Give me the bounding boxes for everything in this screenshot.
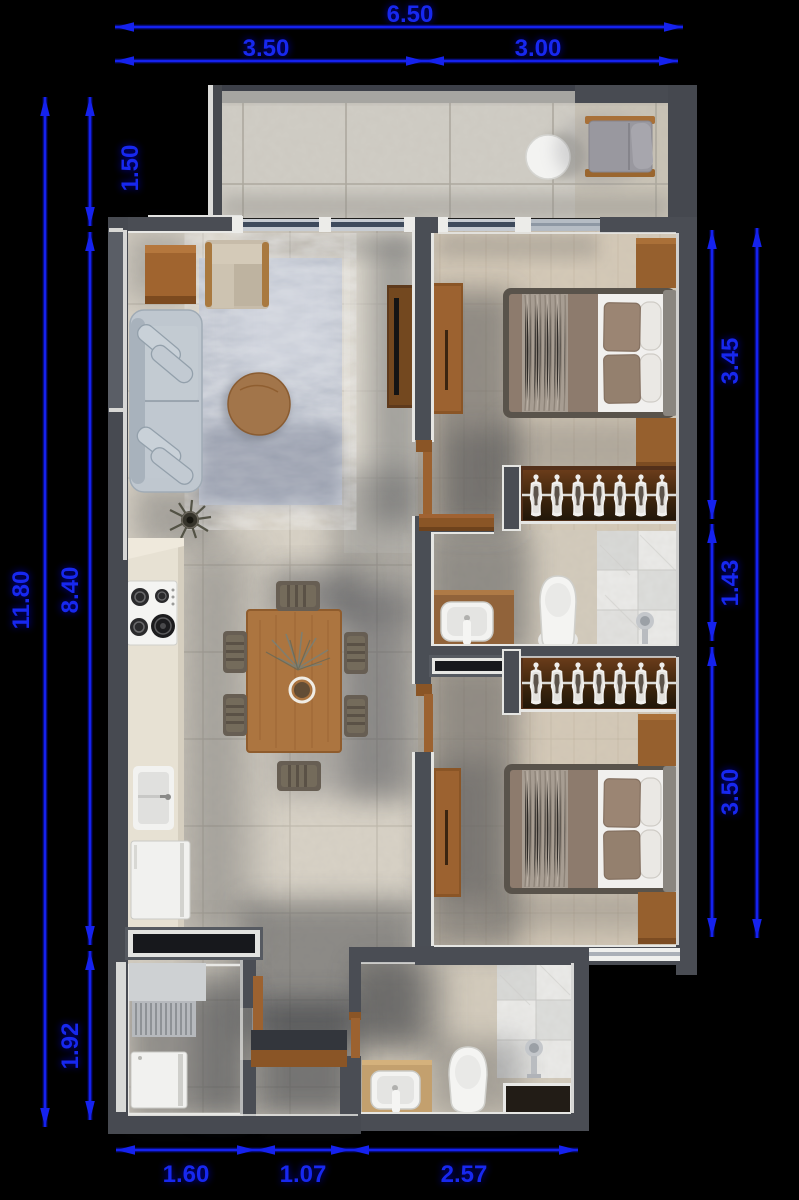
svg-text:1.50: 1.50 <box>117 145 144 192</box>
svg-text:3.50: 3.50 <box>717 769 744 816</box>
svg-text:1.43: 1.43 <box>717 560 744 607</box>
svg-text:2.57: 2.57 <box>441 1161 488 1188</box>
svg-text:6.50: 6.50 <box>387 1 434 28</box>
svg-text:1.92: 1.92 <box>57 1023 84 1070</box>
svg-text:8.40: 8.40 <box>57 567 84 614</box>
svg-text:3.50: 3.50 <box>243 35 290 62</box>
svg-text:1.07: 1.07 <box>280 1161 327 1188</box>
svg-text:3.45: 3.45 <box>717 338 744 385</box>
svg-text:1.60: 1.60 <box>163 1161 210 1188</box>
svg-text:3.00: 3.00 <box>515 35 562 62</box>
svg-text:11.80: 11.80 <box>8 571 35 630</box>
